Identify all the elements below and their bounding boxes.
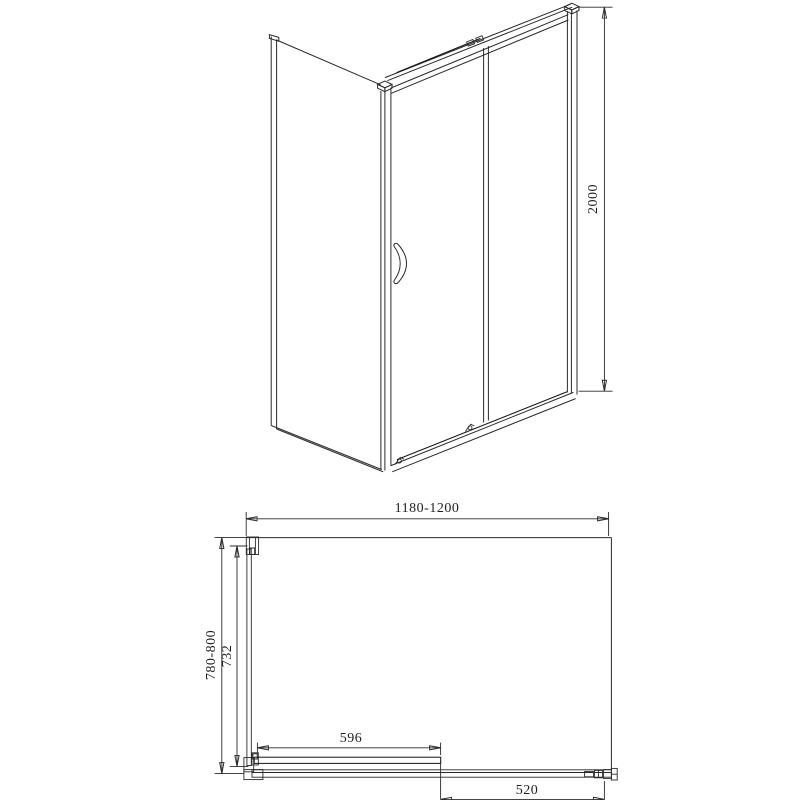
middle-post	[484, 46, 489, 423]
overall-width-dimension-label: 1180-1200	[395, 501, 460, 517]
drawing-linework	[0, 0, 800, 800]
plan-outline	[246, 538, 611, 770]
height-dimension-label: 2000	[586, 184, 602, 214]
plan-view	[215, 512, 618, 800]
plan-side-panel	[247, 549, 251, 766]
shower-enclosure-technical-drawing: 2000 1180-1200 780-800 732 596 520	[0, 0, 800, 800]
top-rail	[385, 4, 572, 93]
fixed-width-dimension-label: 520	[516, 783, 539, 799]
front-view	[269, 3, 612, 472]
front-right-post	[565, 3, 579, 394]
overall-depth-dimension-label: 780-800	[204, 630, 220, 680]
plan-sliding-door	[252, 753, 441, 765]
door-handle	[394, 243, 407, 283]
front-left-post	[378, 81, 392, 471]
door-width-dimension-label: 596	[340, 731, 363, 747]
plan-track	[252, 770, 611, 777]
glass-depth-dimension-label: 732	[220, 645, 236, 668]
side-panel	[269, 35, 383, 472]
plan-wall-profile-top	[246, 537, 258, 555]
